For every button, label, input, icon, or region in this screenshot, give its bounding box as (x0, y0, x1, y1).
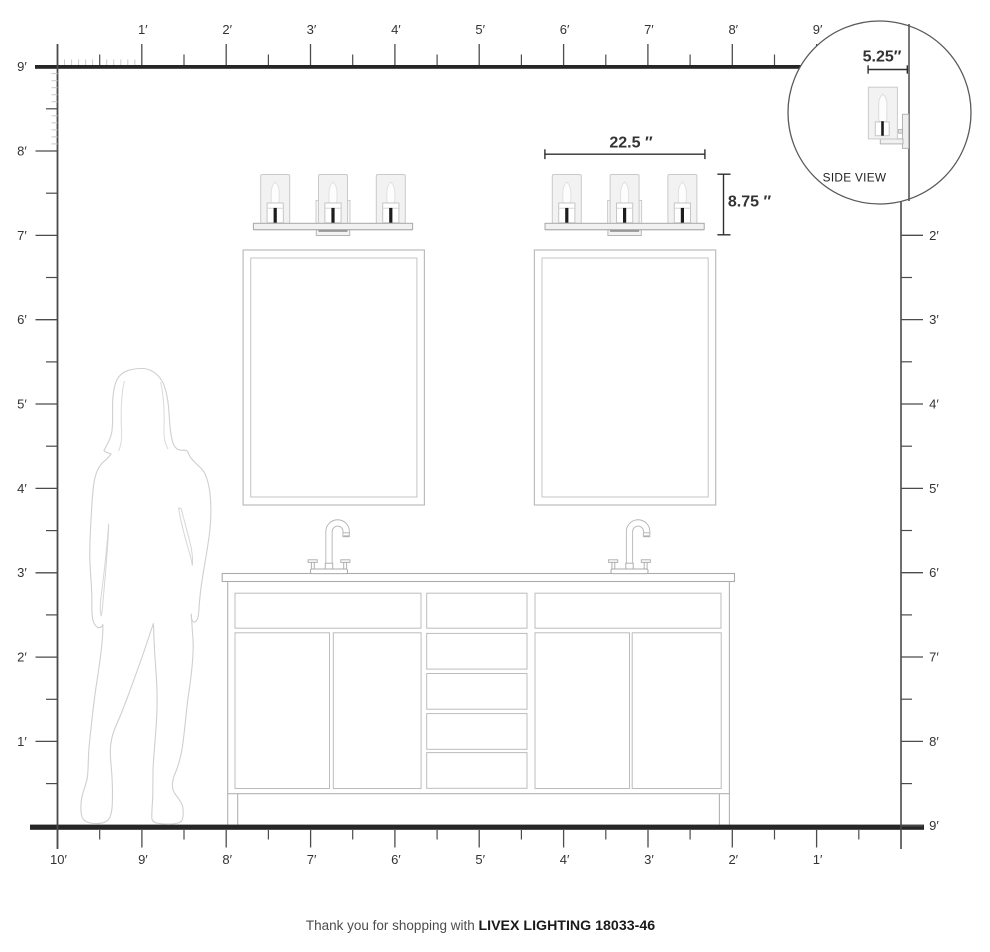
svg-text:2′: 2′ (17, 650, 27, 665)
svg-text:6′: 6′ (17, 312, 27, 327)
svg-text:22.5 ″: 22.5 ″ (609, 135, 653, 152)
svg-text:2′: 2′ (222, 22, 232, 37)
svg-text:4′: 4′ (17, 481, 27, 496)
svg-text:8′: 8′ (929, 734, 939, 749)
svg-text:4′: 4′ (929, 397, 939, 412)
svg-text:1′: 1′ (17, 734, 27, 749)
svg-text:1′: 1′ (138, 22, 148, 37)
svg-text:7′: 7′ (929, 650, 939, 665)
svg-text:3′: 3′ (17, 565, 27, 580)
svg-text:8.75 ″: 8.75 ″ (728, 194, 772, 211)
svg-text:3′: 3′ (307, 22, 317, 37)
svg-text:6′: 6′ (391, 852, 401, 867)
svg-text:2′: 2′ (728, 852, 738, 867)
svg-text:10′: 10′ (50, 852, 67, 867)
svg-text:5.25″: 5.25″ (863, 48, 902, 65)
svg-text:9′: 9′ (138, 852, 148, 867)
svg-text:1′: 1′ (813, 852, 823, 867)
svg-text:3′: 3′ (929, 312, 939, 327)
svg-text:8′: 8′ (728, 22, 738, 37)
svg-text:9′: 9′ (17, 59, 27, 74)
svg-text:4′: 4′ (560, 852, 570, 867)
svg-text:8′: 8′ (17, 144, 27, 159)
svg-text:5′: 5′ (475, 852, 485, 867)
svg-text:5′: 5′ (17, 397, 27, 412)
svg-text:3′: 3′ (644, 852, 654, 867)
svg-text:9′: 9′ (929, 818, 939, 833)
svg-text:7′: 7′ (17, 228, 27, 243)
svg-text:7′: 7′ (307, 852, 317, 867)
svg-text:5′: 5′ (929, 481, 939, 496)
svg-text:SIDE VIEW: SIDE VIEW (823, 171, 887, 185)
svg-text:9′: 9′ (813, 22, 823, 37)
svg-text:6′: 6′ (560, 22, 570, 37)
svg-text:2′: 2′ (929, 228, 939, 243)
svg-text:7′: 7′ (644, 22, 654, 37)
svg-text:Thank you for shopping with LI: Thank you for shopping with LIVEX LIGHTI… (306, 918, 655, 934)
svg-text:5′: 5′ (475, 22, 485, 37)
svg-text:8′: 8′ (222, 852, 232, 867)
svg-text:6′: 6′ (929, 565, 939, 580)
svg-text:4′: 4′ (391, 22, 401, 37)
